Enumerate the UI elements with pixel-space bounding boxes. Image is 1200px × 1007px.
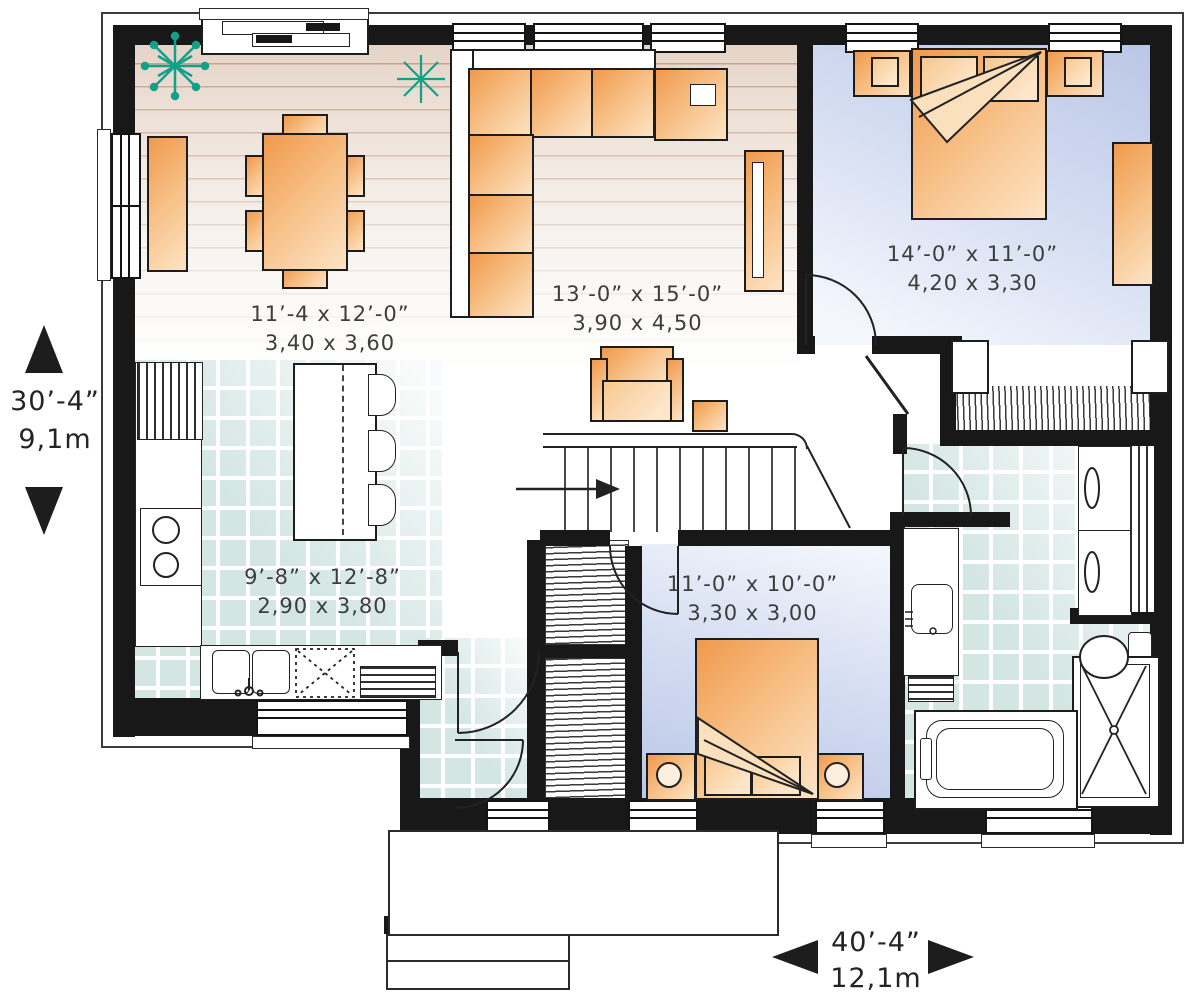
kitchen-dims-metric: 2,90 x 3,80 (205, 592, 440, 621)
overall-depth-metric: 9,1m (0, 423, 110, 457)
vanity-faucet (905, 612, 936, 634)
kitchen-dims-imperial: 9’-8” x 12’-8” (205, 563, 440, 592)
master-bed-fold (911, 52, 1041, 142)
overall-width-metric: 12,1m (826, 962, 926, 996)
plan-annotations (0, 0, 1200, 1007)
plant-icon (397, 55, 445, 103)
depth-arrow-down-icon (25, 487, 63, 535)
bedroom2-dims-imperial: 11’-0” x 10’-0” (635, 570, 870, 599)
entry-closet-door-swing (455, 740, 523, 808)
master-dims-metric: 4,20 x 3,30 (855, 269, 1090, 298)
living-dims-metric: 3,90 x 4,50 (520, 309, 755, 338)
plant-icon (142, 33, 208, 99)
overall-depth-imperial: 30’-4” (0, 385, 110, 419)
width-arrow-right-icon (928, 940, 974, 974)
stove-burners (153, 517, 179, 577)
toilet-bowl (1080, 636, 1128, 678)
dishwasher-x (298, 651, 352, 695)
bedroom2-bed-fold (698, 718, 813, 794)
master-dims-imperial: 14’-0” x 11’-0” (855, 240, 1090, 269)
stair-edge (807, 446, 850, 528)
living-dims-imperial: 13’-0” x 15’-0” (520, 280, 755, 309)
dining-room-label: 11’-4 x 12’-0” 3,40 x 3,60 (215, 300, 445, 358)
entry-door-swing (458, 652, 539, 733)
floor-plan: 11’-4 x 12’-0” 3,40 x 3,60 13’-0” x 15’-… (0, 0, 1200, 1007)
depth-arrow-up-icon (25, 325, 63, 373)
laundry-doors (1085, 468, 1099, 592)
overall-width-imperial: 40’-4” (826, 926, 926, 960)
shower-drain (1110, 726, 1118, 734)
angled-closet-door (866, 356, 908, 414)
bedroom2-dims-metric: 3,30 x 3,00 (635, 599, 870, 628)
kitchen-label: 9’-8” x 12’-8” 2,90 x 3,80 (205, 563, 440, 621)
width-arrow-left-icon (772, 940, 818, 974)
stairs-direction-arrow (516, 479, 620, 499)
bedroom2-label: 11’-0” x 10’-0” 3,30 x 3,00 (635, 570, 870, 628)
master-bedroom-label: 14’-0” x 11’-0” 4,20 x 3,30 (855, 240, 1090, 298)
dining-dims-metric: 3,40 x 3,60 (215, 329, 445, 358)
dining-dims-imperial: 11’-4 x 12’-0” (215, 300, 445, 329)
kitchen-faucet (236, 678, 263, 696)
bathroom-door-swing (903, 448, 971, 516)
living-room-label: 13’-0” x 15’-0” 3,90 x 4,50 (520, 280, 755, 338)
